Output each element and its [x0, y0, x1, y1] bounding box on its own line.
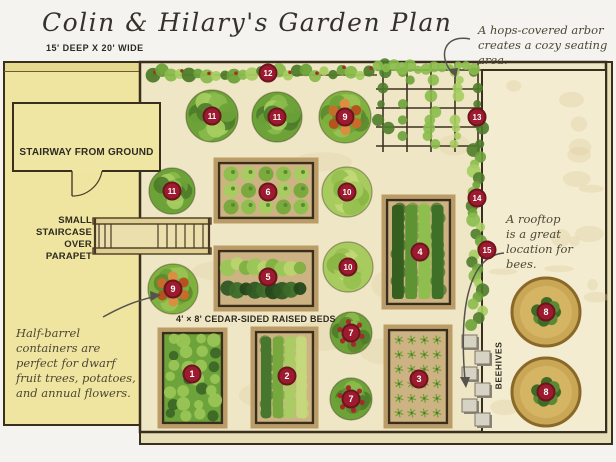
staircase-deck — [95, 222, 209, 251]
svg-text:15: 15 — [483, 246, 492, 255]
marker-9: 9 — [337, 109, 354, 126]
left-parapet-top — [5, 63, 139, 71]
beehive-box — [462, 399, 479, 414]
svg-text:8: 8 — [543, 387, 548, 397]
svg-text:11: 11 — [168, 187, 177, 196]
svg-text:10: 10 — [344, 263, 353, 272]
svg-text:5: 5 — [265, 272, 270, 282]
svg-text:4: 4 — [417, 247, 422, 257]
marker-11: 11 — [164, 183, 181, 200]
svg-text:9: 9 — [342, 112, 347, 122]
marker-15: 15 — [479, 242, 496, 259]
beehive-box — [475, 413, 492, 428]
beehive-box — [475, 351, 492, 366]
label-beehives: BEEHIVES — [494, 331, 505, 401]
marker-1: 1 — [184, 366, 201, 383]
plot-dimensions: 15' DEEP X 20' WIDE — [46, 43, 144, 53]
marker-13: 13 — [469, 109, 486, 126]
svg-text:6: 6 — [265, 187, 270, 197]
svg-text:1: 1 — [189, 369, 194, 379]
svg-text:11: 11 — [208, 112, 217, 121]
marker-8: 8 — [538, 304, 555, 321]
staircase-top-rail — [93, 218, 211, 224]
svg-text:12: 12 — [264, 69, 273, 78]
svg-text:13: 13 — [473, 113, 482, 122]
svg-text:3: 3 — [416, 374, 421, 384]
annotation-rooftop: A rooftop is a great location for bees. — [506, 212, 573, 272]
marker-9: 9 — [165, 281, 182, 298]
marker-12: 12 — [260, 65, 277, 82]
beehive-box — [475, 383, 492, 398]
marker-10: 10 — [340, 259, 357, 276]
marker-3: 3 — [411, 371, 428, 388]
stairway-room — [13, 103, 160, 171]
annotation-half-barrel: Half-barrel containers are perfect for d… — [16, 326, 136, 401]
label-staircase: SMALL STAIRCASE OVER PARAPET — [16, 215, 92, 263]
annotation-arbor: A hops-covered arbor creates a cozy seat… — [478, 23, 616, 68]
page-title: Colin & Hilary's Garden Plan — [42, 8, 452, 37]
label-stairway: STAIRWAY FROM GROUND — [13, 147, 160, 158]
marker-2: 2 — [279, 368, 296, 385]
svg-text:7: 7 — [348, 394, 353, 404]
marker-14: 14 — [469, 190, 486, 207]
staircase-over-parapet — [93, 218, 211, 254]
garden-plan-page: 123456778899101011111112131415 Colin & H… — [0, 0, 616, 462]
svg-text:7: 7 — [348, 328, 353, 338]
beehive-box — [462, 335, 479, 350]
marker-6: 6 — [260, 184, 277, 201]
marker-5: 5 — [260, 269, 277, 286]
label-raised-beds: 4' × 8' CEDAR-SIDED RAISED BEDS — [176, 314, 336, 324]
marker-7: 7 — [343, 325, 360, 342]
svg-text:9: 9 — [170, 284, 175, 294]
svg-text:8: 8 — [543, 307, 548, 317]
svg-text:14: 14 — [473, 194, 482, 203]
marker-4: 4 — [412, 244, 429, 261]
svg-text:11: 11 — [273, 113, 282, 122]
svg-text:10: 10 — [343, 188, 352, 197]
marker-7: 7 — [343, 391, 360, 408]
staircase-bottom-rail — [93, 248, 211, 254]
marker-11: 11 — [204, 108, 221, 125]
marker-10: 10 — [339, 184, 356, 201]
marker-8: 8 — [538, 384, 555, 401]
marker-11: 11 — [269, 109, 286, 126]
svg-text:2: 2 — [284, 371, 289, 381]
